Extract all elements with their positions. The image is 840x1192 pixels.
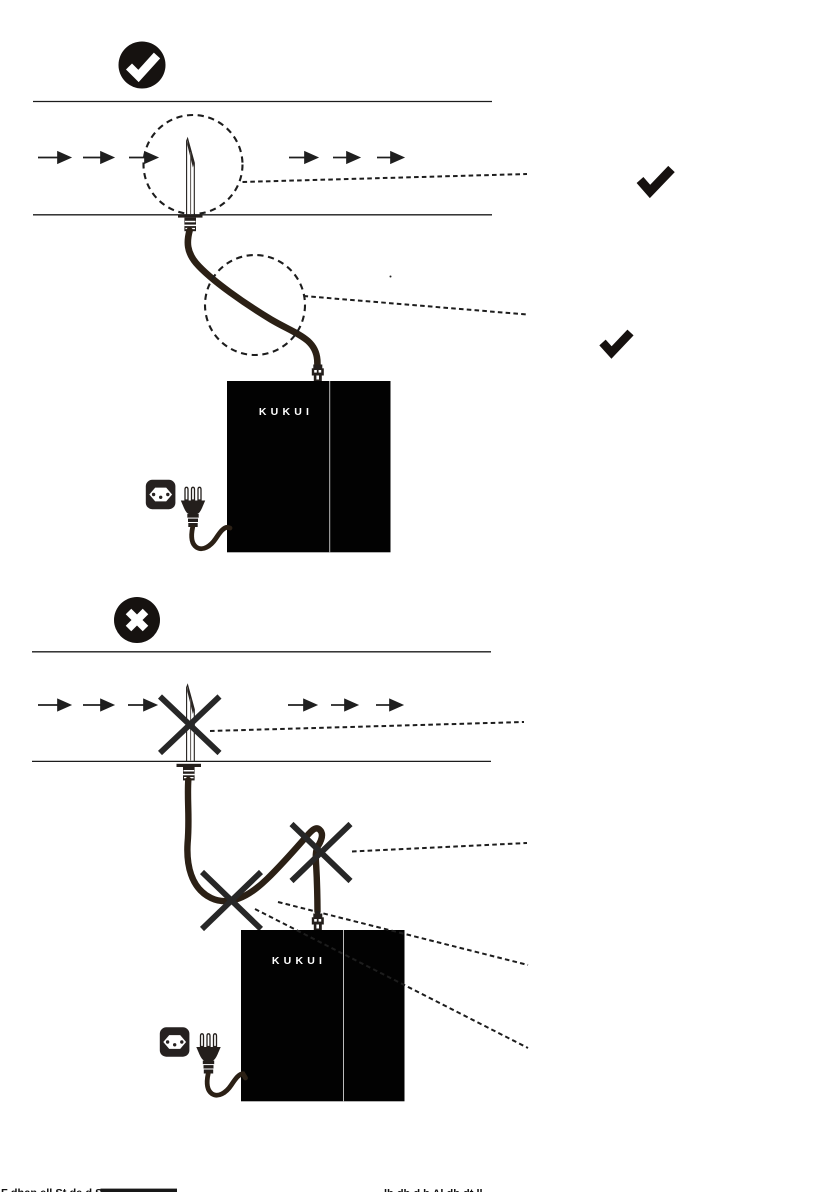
svg-text:KUKUI: KUKUI bbox=[259, 406, 313, 418]
svg-text:lb db d b Al d: lb db d b Al db dt ll bbox=[384, 1188, 483, 1192]
svg-text:KUKUI: KUKUI bbox=[272, 955, 326, 967]
